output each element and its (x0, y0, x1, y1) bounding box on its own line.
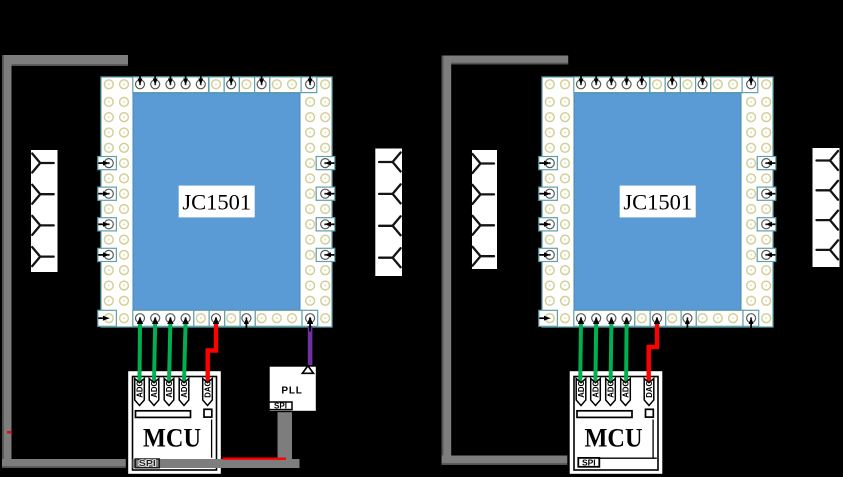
svg-text:JC1501: JC1501 (623, 190, 692, 215)
svg-text:JC1501: JC1501 (182, 190, 251, 215)
svg-text:DAC: DAC (204, 380, 213, 397)
svg-text:ADC: ADC (150, 380, 159, 397)
svg-text:DAC: DAC (645, 380, 654, 397)
svg-text:SPI: SPI (274, 402, 287, 411)
svg-text:ADC: ADC (622, 380, 631, 397)
svg-text:SPI: SPI (139, 458, 156, 468)
svg-text:ADC: ADC (577, 380, 586, 397)
svg-text:ADC: ADC (165, 380, 174, 397)
svg-text:ADC: ADC (180, 380, 189, 397)
svg-text:MCU: MCU (585, 423, 643, 453)
svg-text:ADC: ADC (607, 380, 616, 397)
svg-text:PLL: PLL (281, 386, 302, 397)
svg-text:ADC: ADC (136, 380, 145, 397)
svg-text:MCU: MCU (143, 423, 201, 453)
svg-text:ADC: ADC (592, 380, 601, 397)
svg-text:SPI: SPI (582, 457, 596, 467)
